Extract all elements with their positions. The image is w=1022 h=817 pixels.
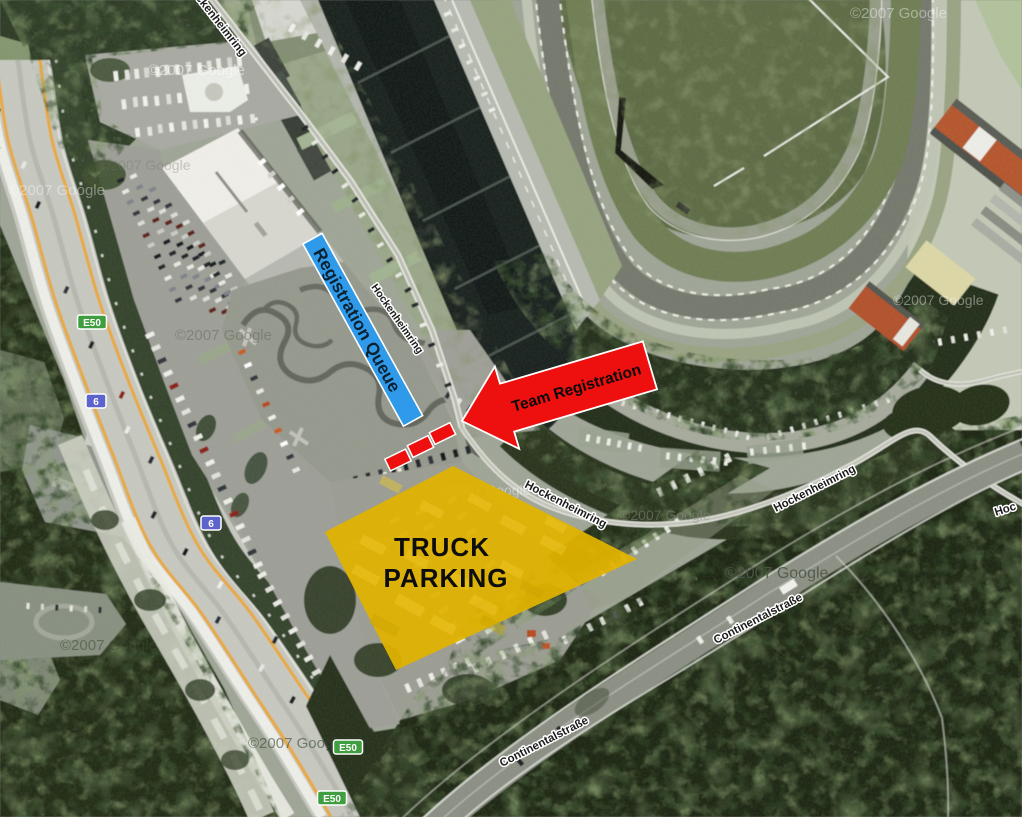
svg-text:E50: E50 bbox=[83, 318, 101, 329]
svg-text:©2007 Google: ©2007 Google bbox=[620, 507, 711, 523]
svg-text:©2007 Google: ©2007 Google bbox=[850, 5, 947, 22]
svg-text:©2007 Google: ©2007 Google bbox=[248, 735, 345, 752]
svg-text:PARKING: PARKING bbox=[384, 563, 509, 593]
svg-text:©2007 Google: ©2007 Google bbox=[60, 637, 157, 654]
svg-text:©2007 Google: ©2007 Google bbox=[175, 327, 272, 344]
svg-text:©2007 Google: ©2007 Google bbox=[100, 157, 191, 173]
svg-text:6: 6 bbox=[93, 397, 99, 408]
svg-text:©2007 Google: ©2007 Google bbox=[148, 62, 245, 79]
svg-text:©2007 Google: ©2007 Google bbox=[8, 182, 105, 199]
svg-text:TRUCK: TRUCK bbox=[394, 532, 490, 562]
svg-text:©2007 Google: ©2007 Google bbox=[893, 292, 984, 308]
svg-text:©2007 Google: ©2007 Google bbox=[725, 565, 829, 582]
svg-text:E50: E50 bbox=[323, 794, 341, 805]
svg-text:E50: E50 bbox=[339, 743, 357, 754]
svg-text:6: 6 bbox=[208, 519, 214, 530]
